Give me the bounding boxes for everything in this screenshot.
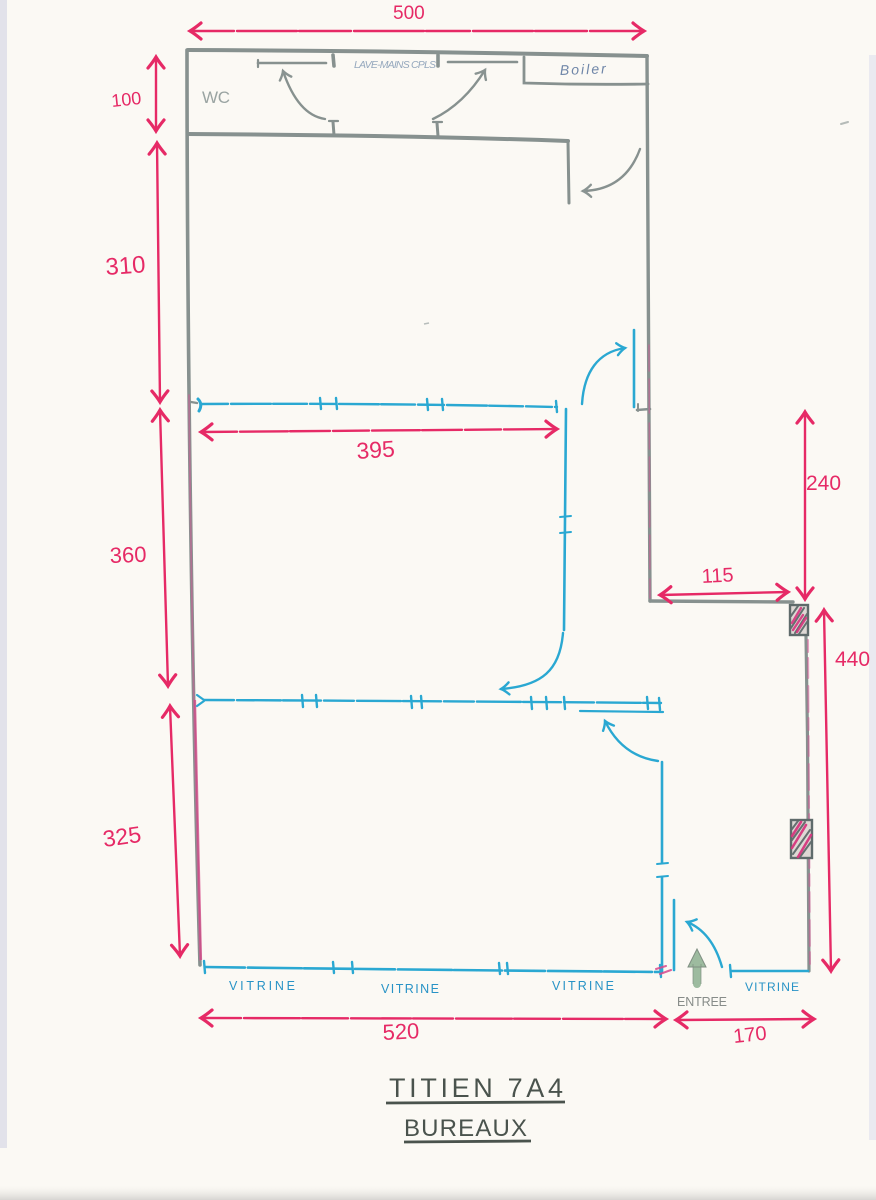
svg-text:115: 115 <box>701 564 734 588</box>
svg-text:100: 100 <box>110 88 142 111</box>
svg-text:BUREAUX: BUREAUX <box>404 1115 528 1142</box>
svg-text:395: 395 <box>356 435 396 464</box>
svg-text:170: 170 <box>732 1023 767 1048</box>
svg-text:240: 240 <box>806 472 841 495</box>
svg-text:ENTREE: ENTREE <box>677 995 727 1009</box>
svg-text:TITIEN 7A4: TITIEN 7A4 <box>389 1073 565 1103</box>
svg-text:440: 440 <box>835 648 870 671</box>
svg-text:LAVE-MAINS CPLS: LAVE-MAINS CPLS <box>354 59 436 71</box>
svg-text:520: 520 <box>382 1018 420 1045</box>
svg-text:310: 310 <box>105 251 147 281</box>
svg-text:325: 325 <box>101 821 143 852</box>
svg-text:WC: WC <box>202 88 230 107</box>
svg-text:500: 500 <box>393 3 425 24</box>
svg-text:360: 360 <box>109 542 147 568</box>
